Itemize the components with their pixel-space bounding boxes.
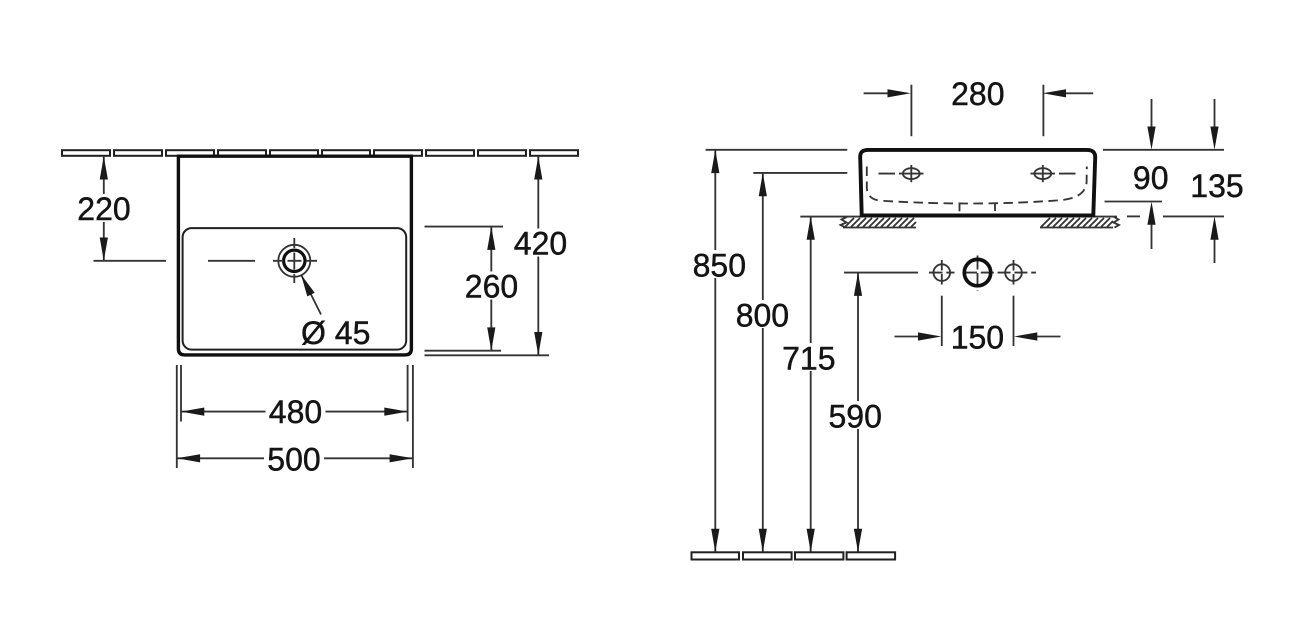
svg-text:800: 800 — [736, 297, 789, 333]
svg-text:135: 135 — [1190, 168, 1243, 204]
svg-text:Ø 45: Ø 45 — [301, 315, 370, 351]
svg-text:280: 280 — [951, 76, 1004, 112]
svg-text:500: 500 — [267, 442, 320, 478]
svg-text:480: 480 — [269, 394, 322, 430]
svg-text:220: 220 — [77, 191, 130, 227]
svg-text:590: 590 — [829, 398, 882, 434]
svg-text:715: 715 — [782, 340, 835, 376]
svg-text:420: 420 — [514, 226, 567, 262]
svg-text:260: 260 — [465, 269, 518, 305]
svg-text:150: 150 — [951, 319, 1004, 355]
svg-text:850: 850 — [693, 247, 746, 283]
svg-text:90: 90 — [1133, 160, 1169, 196]
